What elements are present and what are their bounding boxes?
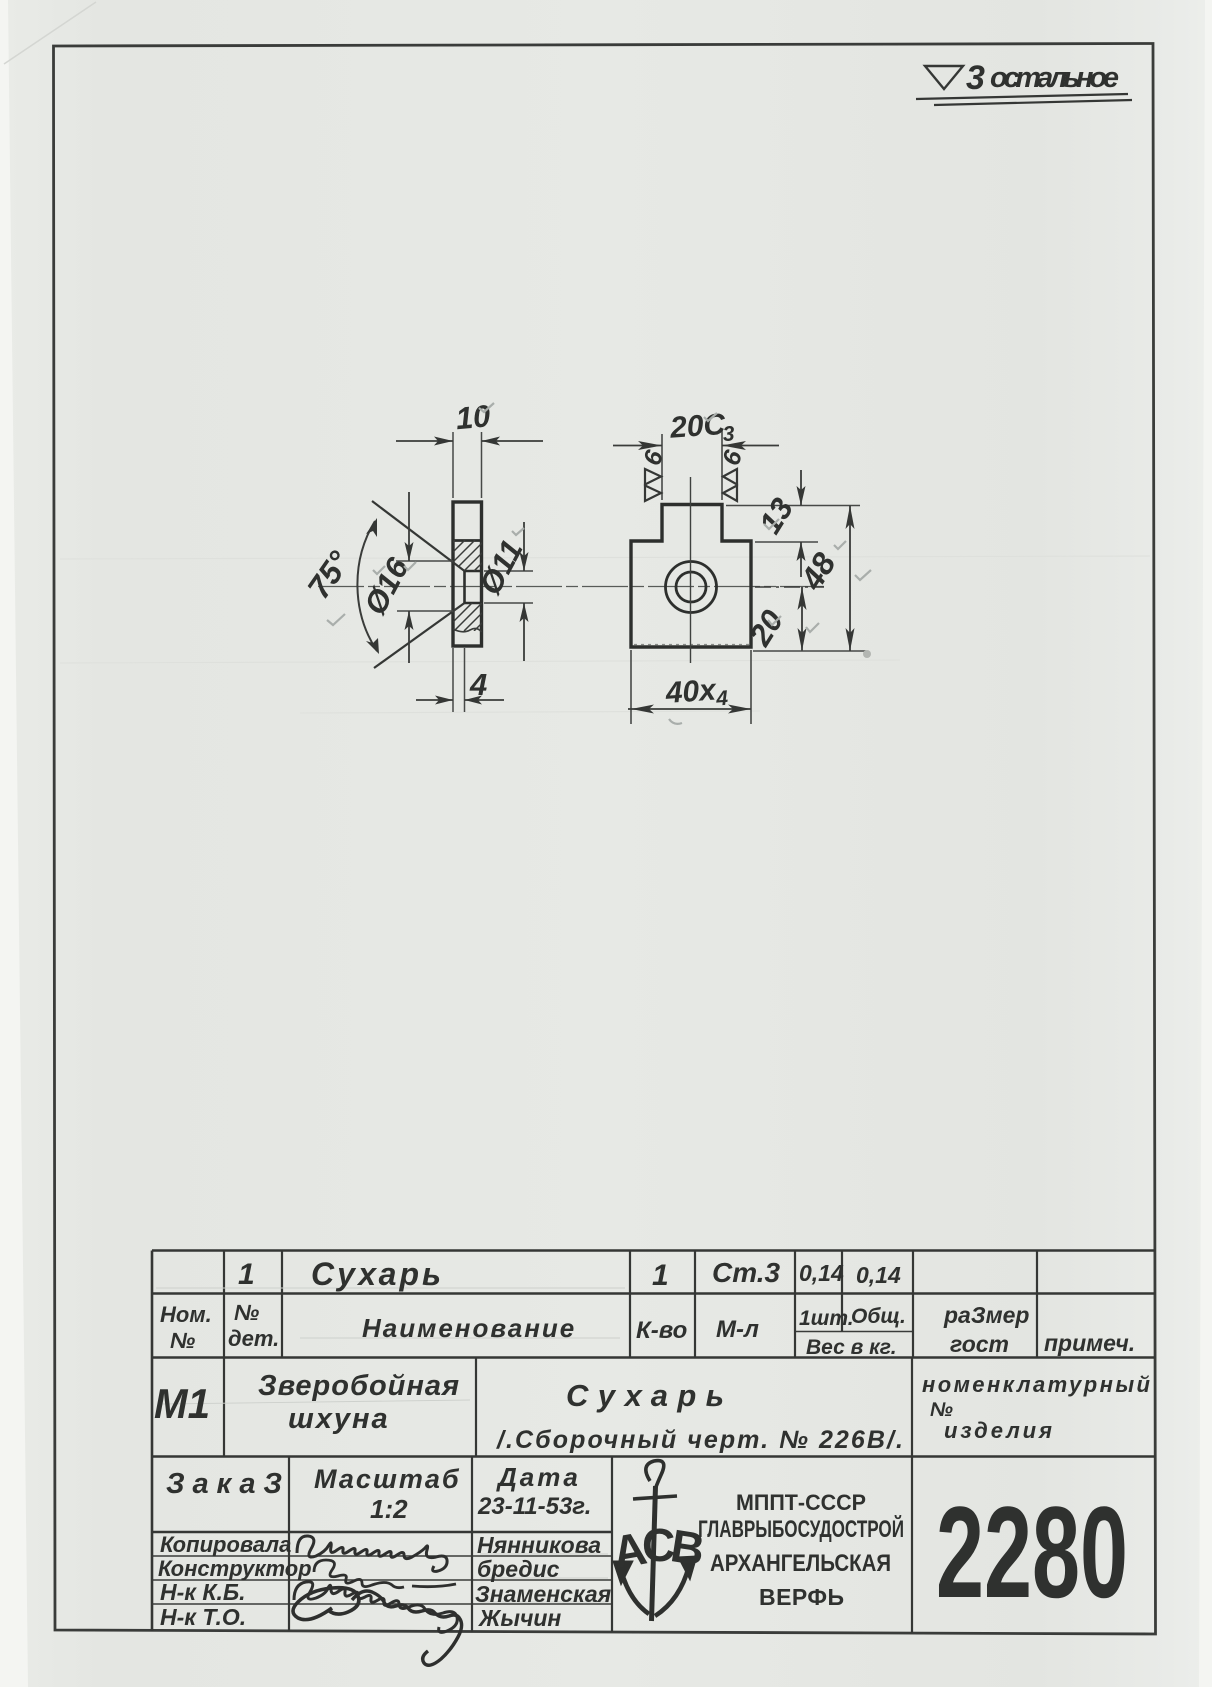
svg-text:1: 1 [238,1258,255,1291]
svg-text:бредис: бредис [477,1556,560,1582]
svg-text:Ст.3: Ст.3 [712,1257,781,1288]
svg-text:Нянникова: Нянникова [477,1532,601,1558]
svg-text:Н-к Т.О.: Н-к Т.О. [160,1604,246,1630]
svg-text:Наименование: Наименование [362,1313,576,1343]
svg-text:ГЛАВРЫБОСУДОСТРОЙ: ГЛАВРЫБОСУДОСТРОЙ [698,1515,904,1543]
svg-text:номенклатурный: номенклатурный [922,1372,1151,1397]
svg-text:2280: 2280 [936,1479,1128,1625]
svg-text:№: № [234,1300,259,1325]
svg-text:Дата: Дата [496,1462,581,1492]
svg-text:40x: 40x [664,673,719,710]
svg-text:23-11-53г.: 23-11-53г. [477,1493,591,1520]
svg-text:Сухарь: Сухарь [311,1256,444,1292]
svg-text:№: № [170,1328,195,1353]
svg-text:АРХАНГЕЛЬСКАЯ: АРХАНГЕЛЬСКАЯ [710,1550,891,1577]
svg-text:гост: гост [950,1331,1009,1357]
svg-text:4: 4 [715,687,730,711]
svg-text:Знаменская: Знаменская [475,1581,612,1607]
svg-text:Жычин: Жычин [478,1605,561,1631]
svg-text:Ном.: Ном. [160,1302,212,1327]
svg-text:М1: М1 [154,1380,210,1427]
svg-text:Копировала: Копировала [160,1532,291,1557]
svg-text:Масштаб: Масштаб [314,1464,461,1494]
svg-text:3: 3 [966,59,985,97]
svg-text:изделия: изделия [944,1418,1052,1443]
svg-text:Вес в кг.: Вес в кг. [806,1336,897,1359]
svg-text:0,14: 0,14 [799,1260,844,1286]
svg-text:М-л: М-л [716,1316,759,1343]
svg-text:1:2: 1:2 [370,1494,408,1524]
svg-text:4: 4 [469,667,487,702]
svg-text:шхуна: шхуна [288,1403,390,1435]
svg-text:ВЕРФЬ: ВЕРФЬ [759,1584,846,1610]
svg-text:МППТ-СССР: МППТ-СССР [736,1490,866,1515]
svg-text:Н-к К.Б.: Н-к К.Б. [160,1579,246,1605]
svg-text:10: 10 [454,398,491,436]
svg-text:1: 1 [652,1259,669,1292]
svg-text:Конструктор: Конструктор [158,1556,312,1581]
svg-text:примеч.: примеч. [1044,1330,1135,1356]
svg-text:К-во: К-во [636,1317,687,1344]
svg-text:дет.: дет. [228,1326,279,1351]
svg-text:3: 3 [722,422,736,446]
svg-text:/.Сборочный черт. № 226В/.: /.Сборочный черт. № 226В/. [496,1426,903,1454]
svg-text:0,14: 0,14 [856,1262,901,1288]
svg-text:1шт.: 1шт. [799,1307,854,1330]
svg-text:остальное: остальное [990,62,1119,94]
svg-text:ЗакаЗ: ЗакаЗ [166,1468,282,1500]
svg-text:раЗмер: раЗмер [943,1302,1029,1328]
svg-text:Общ.: Общ. [851,1305,906,1328]
svg-text:Зверобойная: Зверобойная [258,1370,460,1402]
svg-text:20C: 20C [668,408,728,445]
